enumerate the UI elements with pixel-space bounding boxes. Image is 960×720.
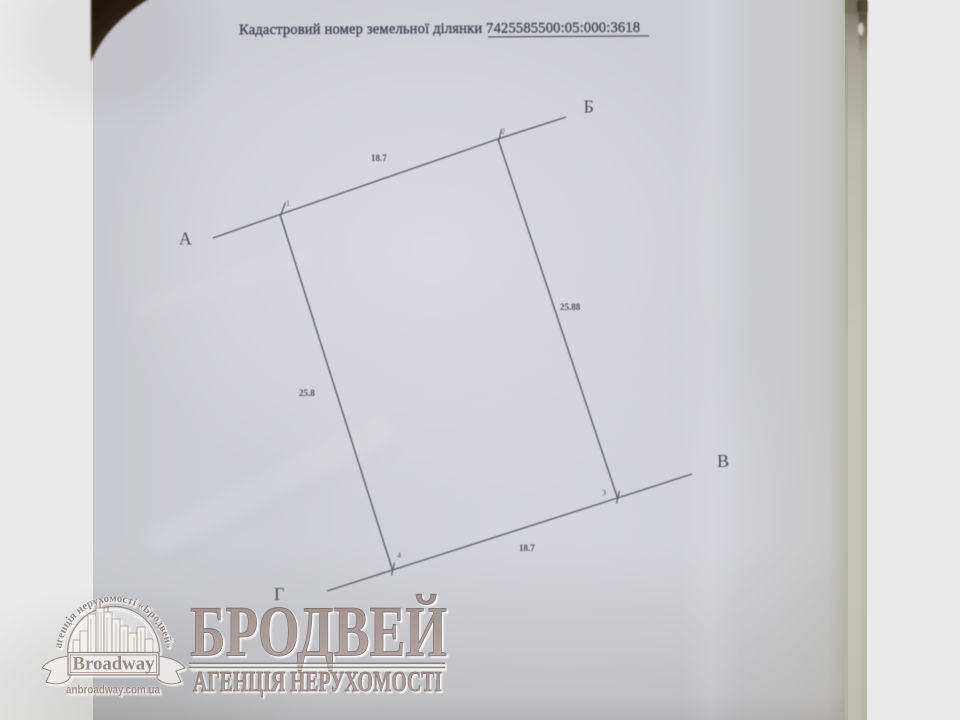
svg-text:18.7: 18.7 — [519, 543, 535, 553]
svg-text:4: 4 — [397, 551, 401, 560]
svg-text:Б: Б — [584, 97, 594, 117]
svg-text:АГЕНЦІЯ НЕРУХОМОСТІ: АГЕНЦІЯ НЕРУХОМОСТІ — [193, 667, 442, 698]
svg-text:3: 3 — [602, 488, 606, 497]
svg-text:25.8: 25.8 — [299, 388, 315, 398]
svg-text:18.7: 18.7 — [371, 153, 387, 163]
svg-text:В: В — [717, 451, 729, 471]
svg-text:2: 2 — [501, 127, 505, 136]
svg-text:25.88: 25.88 — [560, 302, 581, 312]
svg-text:anbroadway.com.ua: anbroadway.com.ua — [66, 683, 160, 697]
svg-text:1: 1 — [286, 199, 290, 208]
svg-text:БРОДВЕЙ: БРОДВЕЙ — [190, 592, 447, 672]
svg-text:Кадастровий номер земельної ді: Кадастровий номер земельної ділянки 7425… — [239, 20, 640, 38]
svg-text:А: А — [179, 229, 192, 249]
svg-text:Broadway: Broadway — [73, 654, 155, 675]
